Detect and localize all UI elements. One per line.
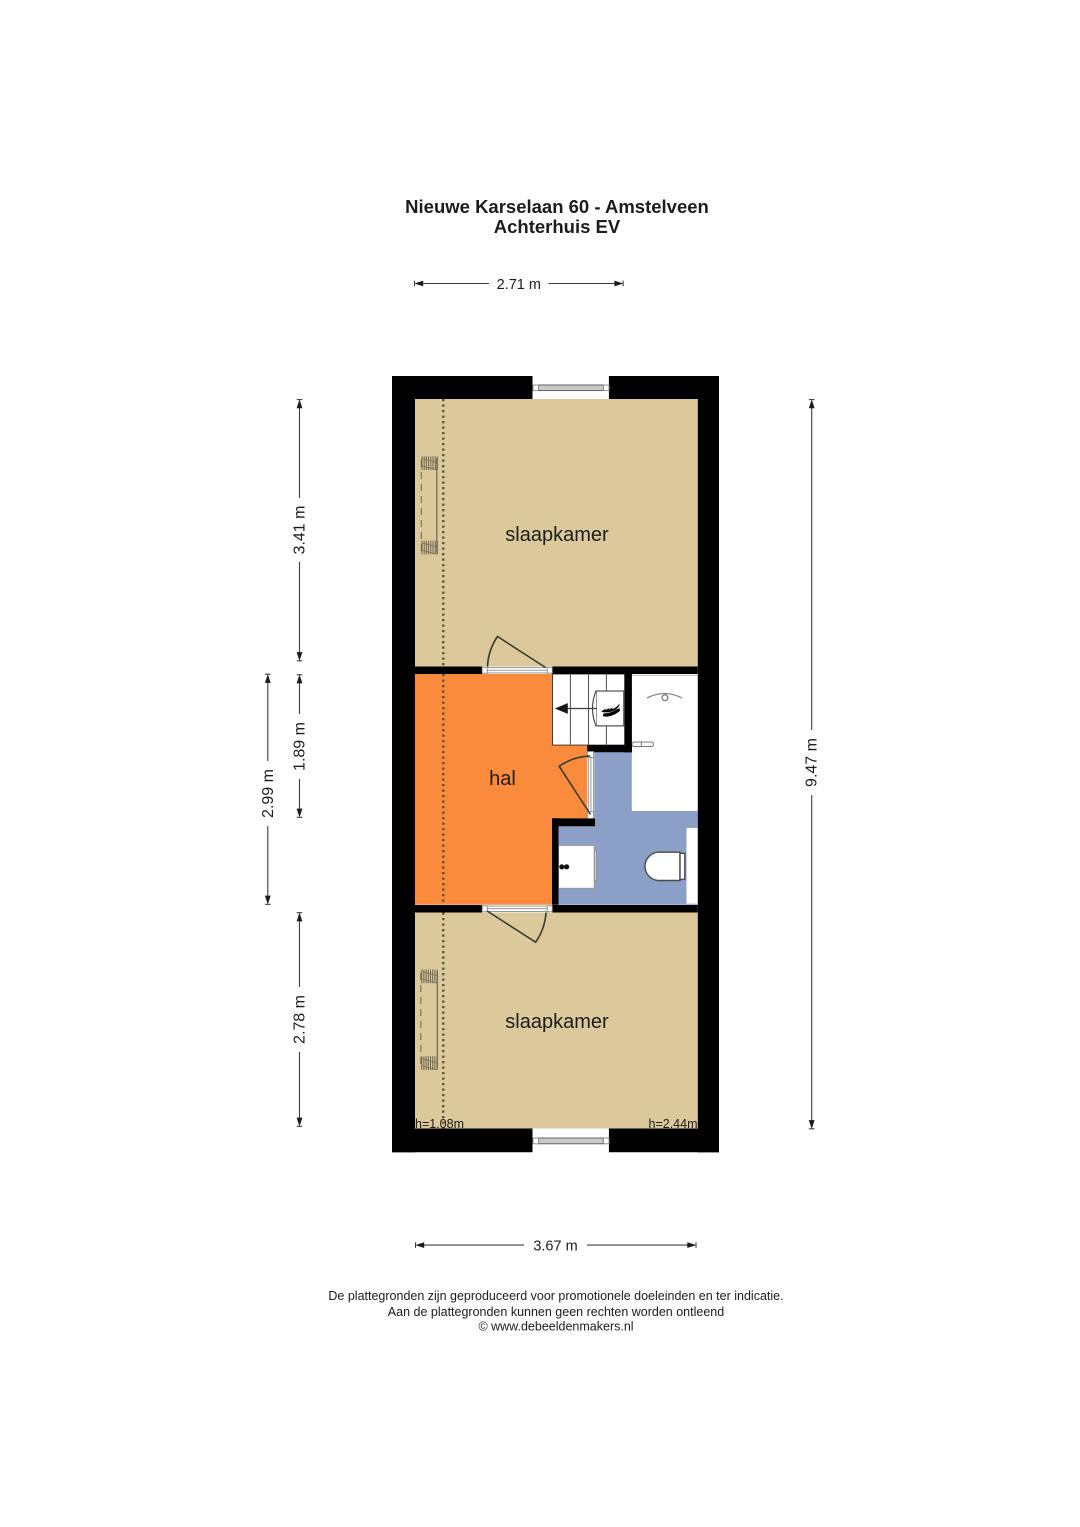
svg-text:© www.debeeldenmakers.nl: © www.debeeldenmakers.nl	[478, 1320, 633, 1334]
svg-text:h=2.44m: h=2.44m	[649, 1117, 698, 1131]
svg-text:hal: hal	[489, 768, 516, 790]
svg-text:1.89 m: 1.89 m	[292, 722, 309, 771]
svg-text:2.99 m: 2.99 m	[260, 769, 277, 818]
svg-text:h=1.08m: h=1.08m	[415, 1117, 464, 1131]
svg-text:3.41 m: 3.41 m	[292, 506, 309, 555]
svg-text:De plattegronden zijn geproduc: De plattegronden zijn geproduceerd voor …	[328, 1289, 783, 1303]
svg-text:2.71 m: 2.71 m	[497, 277, 541, 293]
svg-text:Aan de plattegronden kunnen ge: Aan de plattegronden kunnen geen rechten…	[388, 1305, 724, 1319]
svg-text:2.78 m: 2.78 m	[292, 995, 309, 1044]
svg-text:slaapkamer: slaapkamer	[505, 1011, 609, 1033]
svg-text:3.67 m: 3.67 m	[533, 1239, 577, 1255]
svg-text:Nieuwe Karselaan 60 - Amstelve: Nieuwe Karselaan 60 - Amstelveen	[405, 196, 709, 217]
svg-text:slaapkamer: slaapkamer	[505, 524, 609, 546]
svg-text:9.47 m: 9.47 m	[804, 738, 821, 787]
svg-text:Achterhuis EV: Achterhuis EV	[494, 216, 621, 237]
